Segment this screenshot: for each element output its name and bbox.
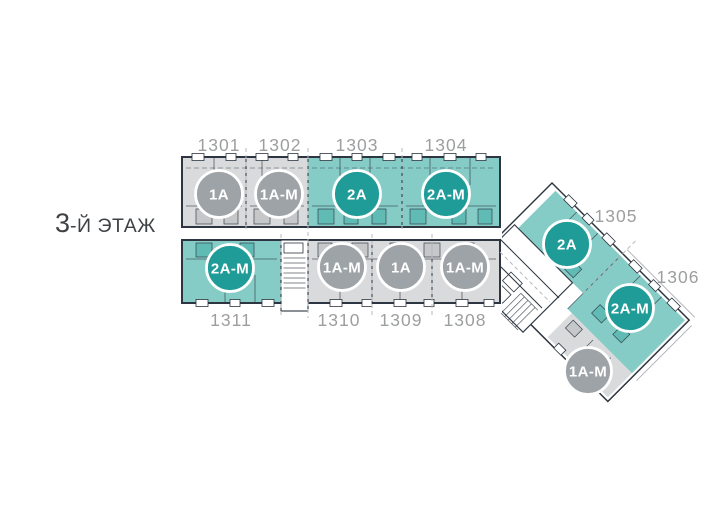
unit-badge-1306[interactable]: 2A-M (607, 285, 654, 332)
unit-label-1303: 1303 (336, 135, 379, 155)
svg-text:1A: 1A (391, 260, 411, 277)
floor-plan-page: 1301 1302 1303 1304 1305 1306 1308 1309 … (0, 0, 726, 520)
unit-badge-1307[interactable]: 1A-M (565, 348, 612, 395)
svg-text:2A: 2A (347, 187, 367, 204)
svg-text:1A-M: 1A-M (323, 260, 361, 277)
svg-text:1A-M: 1A-M (446, 260, 484, 277)
unit-label-1302: 1302 (259, 135, 302, 155)
unit-badge-1304[interactable]: 2A-M (423, 171, 470, 218)
floor-number: 3 (55, 208, 70, 238)
unit-badge-1311[interactable]: 2A-M (207, 245, 254, 292)
unit-badge-1302[interactable]: 1A-M (256, 171, 303, 218)
svg-text:1A-M: 1A-M (260, 187, 298, 204)
unit-label-1308: 1308 (444, 310, 487, 330)
unit-badge-1305[interactable]: 2A (544, 221, 591, 268)
unit-badge-1308[interactable]: 1A-M (442, 244, 489, 291)
unit-badge-1309[interactable]: 1A (378, 244, 425, 291)
corridor (184, 228, 500, 240)
svg-text:1A-M: 1A-M (569, 364, 607, 381)
unit-badge-1310[interactable]: 1A-M (319, 244, 366, 291)
unit-label-1305: 1305 (595, 206, 638, 226)
svg-text:2A: 2A (557, 237, 577, 254)
stair-core-main (281, 240, 308, 311)
svg-text:2A-M: 2A-M (211, 261, 249, 278)
unit-badge-1301[interactable]: 1A (196, 171, 243, 218)
unit-badge-1303[interactable]: 2A (334, 171, 381, 218)
unit-label-1309: 1309 (380, 310, 423, 330)
unit-label-1301: 1301 (198, 135, 241, 155)
unit-label-1304: 1304 (425, 135, 468, 155)
svg-text:1A: 1A (209, 187, 229, 204)
unit-label-1306: 1306 (657, 267, 700, 287)
unit-label-1310: 1310 (318, 310, 361, 330)
floor-title: 3-Й ЭТАЖ (55, 208, 156, 238)
svg-text:2A-M: 2A-M (611, 301, 649, 318)
floor-suffix: -Й ЭТАЖ (70, 213, 156, 237)
svg-text:2A-M: 2A-M (427, 187, 465, 204)
unit-label-1311: 1311 (210, 310, 252, 330)
